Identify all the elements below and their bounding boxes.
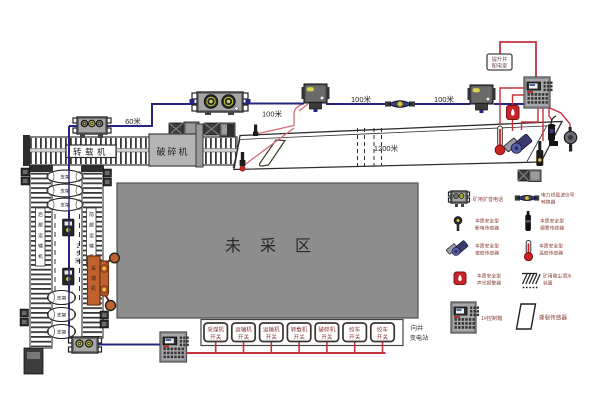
svg-text:装置: 装置	[543, 280, 553, 287]
svg-text:撕裂传感器: 撕裂传感器	[539, 314, 567, 322]
svg-text:1200米: 1200米	[374, 143, 399, 153]
svg-text:矿用扩音电话: 矿用扩音电话	[473, 196, 503, 203]
svg-text:提升井: 提升井	[492, 55, 508, 63]
svg-text:转载机: 转载机	[291, 326, 308, 334]
svg-text:支架: 支架	[57, 311, 67, 318]
svg-text:矿用降尘洒水: 矿用降尘洒水	[543, 273, 572, 280]
svg-text:转载机: 转载机	[73, 147, 109, 157]
svg-text:本质安全型: 本质安全型	[539, 243, 563, 250]
svg-text:开关: 开关	[266, 333, 278, 341]
svg-text:配电室: 配电室	[492, 62, 508, 70]
svg-text:破碎机: 破碎机	[319, 326, 336, 334]
svg-text:未: 未	[225, 237, 241, 255]
svg-text:区: 区	[295, 238, 311, 255]
svg-text:开关: 开关	[349, 333, 361, 341]
svg-text:支架: 支架	[57, 328, 67, 335]
svg-text:变电站: 变电站	[410, 334, 429, 342]
svg-text:1#控制箱: 1#控制箱	[481, 314, 502, 322]
svg-text:100米: 100米	[262, 109, 283, 119]
svg-text:本质安全型: 本质安全型	[540, 218, 564, 225]
svg-text:采: 采	[260, 237, 276, 255]
svg-text:60米: 60米	[125, 116, 141, 126]
svg-text:开关: 开关	[321, 333, 333, 341]
svg-text:烟雾传感器: 烟雾传感器	[540, 225, 564, 232]
svg-text:绞车: 绞车	[377, 326, 389, 334]
svg-text:本质安全型: 本质安全型	[475, 218, 499, 225]
svg-text:向井: 向井	[411, 324, 423, 332]
svg-text:温度传感器: 温度传感器	[539, 250, 563, 257]
svg-text:开关: 开关	[293, 333, 305, 341]
svg-text:声光报警器: 声光报警器	[477, 280, 501, 287]
svg-text:运输机: 运输机	[263, 326, 280, 334]
svg-text:采煤机: 采煤机	[91, 265, 96, 292]
svg-text:绞车: 绞车	[349, 326, 361, 334]
svg-text:运输机: 运输机	[235, 326, 252, 334]
svg-text:100米: 100米	[434, 94, 455, 104]
svg-text:开关: 开关	[377, 333, 389, 341]
svg-text:破碎机: 破碎机	[156, 146, 189, 157]
svg-text:本质安全型: 本质安全型	[477, 273, 501, 280]
svg-text:本质安全型: 本质安全型	[475, 243, 499, 250]
svg-text:开关: 开关	[210, 333, 222, 341]
svg-text:支架: 支架	[57, 294, 67, 301]
svg-text:100米: 100米	[351, 94, 372, 104]
svg-text:电力线载波信号: 电力线载波信号	[541, 192, 575, 199]
svg-text:采煤机: 采煤机	[207, 326, 224, 334]
svg-text:断电传感器: 断电传感器	[475, 225, 499, 232]
svg-text:开关: 开关	[238, 333, 250, 341]
svg-text:转换器: 转换器	[541, 199, 556, 206]
svg-text:速度传感器: 速度传感器	[475, 250, 499, 257]
